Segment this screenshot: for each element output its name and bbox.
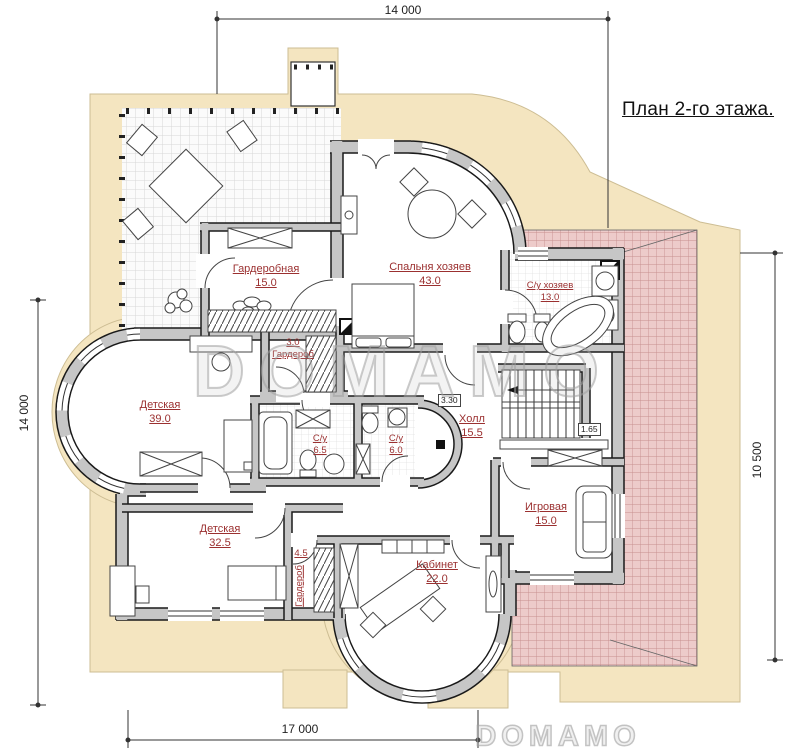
room-label-closet-45-name: Гардероб xyxy=(294,565,306,607)
dimension-bottom: 17 000 xyxy=(282,722,319,736)
room-label-playroom: Игровая15.0 xyxy=(525,500,567,529)
room-label-wardrobe-15: Гардеробная15.0 xyxy=(233,262,300,291)
floor-plan-canvas: План 2-го этажа. Гардеробная15.0 Спальня… xyxy=(0,0,800,754)
toilet-tank xyxy=(300,470,316,477)
hanger-rail xyxy=(208,310,336,332)
bookshelf xyxy=(382,540,444,553)
room-label-closet-45-area: 4.5 xyxy=(294,548,307,560)
desk xyxy=(110,566,135,616)
balcony xyxy=(291,62,335,106)
watermark-corner: DOMAMO xyxy=(475,721,640,754)
dimension-top: 14 000 xyxy=(385,3,422,17)
round-table xyxy=(408,190,456,238)
dimension-right: 10 500 xyxy=(750,442,764,479)
room-label-hall: Холл15.5 xyxy=(459,412,485,441)
chair xyxy=(136,586,149,603)
bed xyxy=(228,566,286,600)
room-label-nursery-325: Детская32.5 xyxy=(200,522,241,551)
toilet xyxy=(362,413,378,433)
shelf xyxy=(486,556,501,612)
room-label-bath-60: С/у6.0 xyxy=(389,433,403,458)
room-label-bath-65: С/у6.5 xyxy=(313,433,327,458)
room-label-master-bath: С/у хозяев13.0 xyxy=(527,280,574,305)
room-label-office: Кабинет22.0 xyxy=(416,558,458,587)
elevation-mark-lower: 1.65 xyxy=(578,423,601,436)
stair-landing xyxy=(500,440,608,449)
room-label-nursery-39: Детская39.0 xyxy=(140,398,181,427)
watermark-center: DOMAMO xyxy=(193,331,613,413)
plan-title: План 2-го этажа. xyxy=(600,99,796,121)
dimension-left: 14 000 xyxy=(17,395,31,432)
room-label-master-bedroom: Спальня хозяев43.0 xyxy=(389,260,471,289)
hanger-rail xyxy=(314,548,334,612)
